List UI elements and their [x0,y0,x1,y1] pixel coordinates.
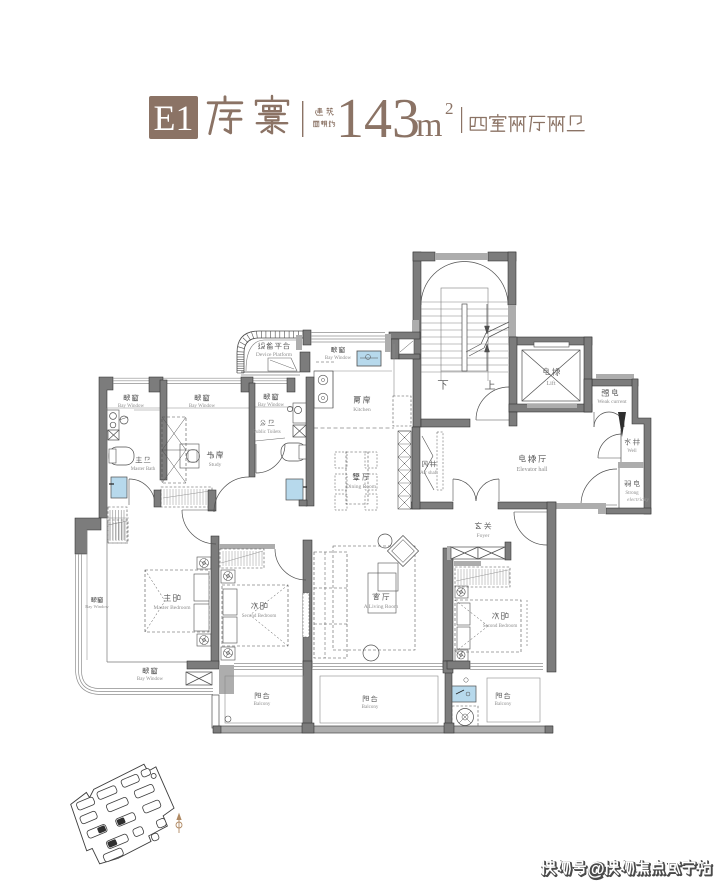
svg-text:electricity: electricity [627,497,650,503]
svg-text:Master Bedroom: Master Bedroom [153,605,191,611]
svg-text:Second Bedroom: Second Bedroom [483,624,518,629]
svg-text:Bay Window: Bay Window [137,677,164,682]
svg-text:Dining Room: Dining Room [346,484,377,490]
svg-text:Well: Well [627,449,637,454]
svg-text:Bay Window: Bay Window [325,356,352,361]
svg-text:Balcony: Balcony [362,705,379,710]
svg-text:Study: Study [209,462,222,468]
svg-text:A Living Room: A Living Room [364,604,399,610]
svg-text:Balcony: Balcony [495,702,512,707]
svg-text:Kitchen: Kitchen [353,407,371,413]
svg-text:Air shaft: Air shaft [420,471,438,476]
svg-text:Weak current: Weak current [597,399,627,405]
svg-text:2: 2 [445,99,454,118]
svg-text:E1: E1 [154,98,194,138]
svg-text:Bay Window: Bay Window [85,604,109,609]
svg-text:@: @ [587,859,605,879]
svg-text:Elevator hall: Elevator hall [517,467,548,473]
svg-text:Lift: Lift [547,380,556,387]
svg-text:Foyer: Foyer [477,533,490,539]
svg-text:m: m [416,107,442,144]
svg-text:Second Bedroom: Second Bedroom [242,614,277,619]
svg-text:Master Bath: Master Bath [131,467,156,472]
svg-text:Public Toilets: Public Toilets [253,430,281,435]
svg-text:Device Platform: Device Platform [256,351,293,358]
svg-text:143: 143 [336,88,420,150]
svg-text:Strong: Strong [625,491,639,496]
svg-text:Balcony: Balcony [254,702,271,707]
